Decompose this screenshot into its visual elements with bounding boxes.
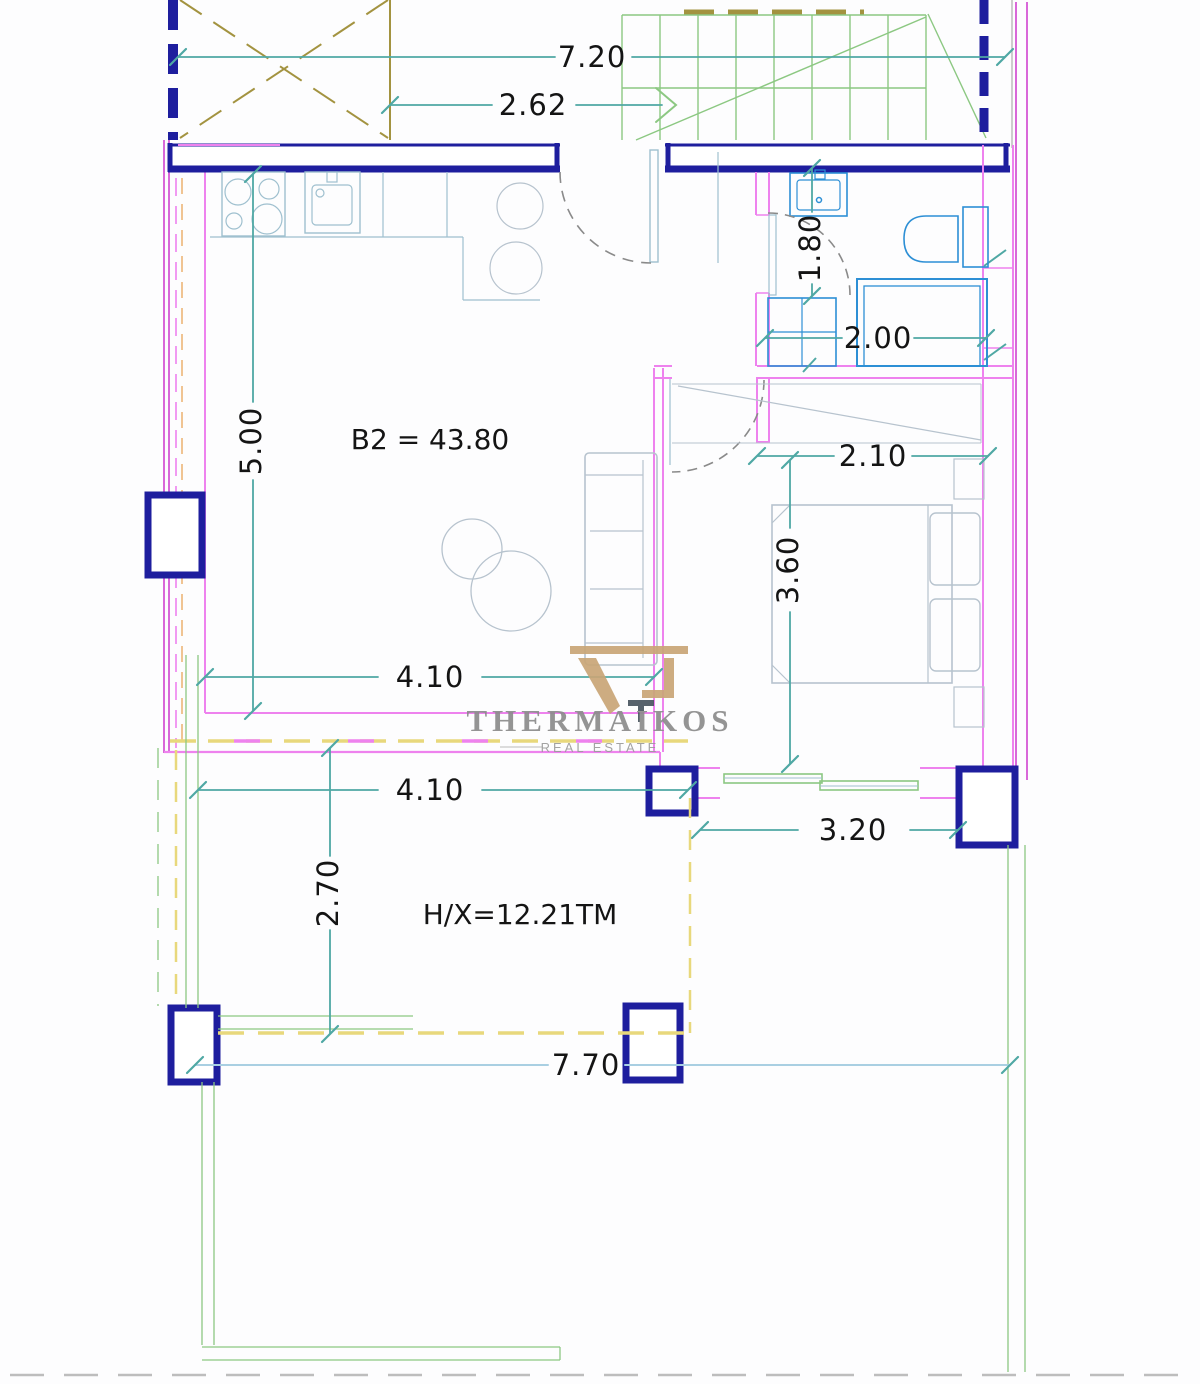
dim-living-width: 4.10 xyxy=(396,660,465,694)
washing-machine xyxy=(768,298,836,372)
floor-plan-drawing: 7.20 2.62 5.00 1.80 2.00 2.10 xyxy=(0,0,1200,1384)
property-line-left xyxy=(164,140,205,753)
dim-closet-width: 2.10 xyxy=(839,439,908,473)
dim-living-depth: 5.00 xyxy=(234,407,268,476)
dim-bedroom-depth: 3.60 xyxy=(771,536,805,605)
terrace-area-label: H/X=12.21TM xyxy=(423,898,618,931)
floor-plan: 7.20 2.62 5.00 1.80 2.00 2.10 xyxy=(0,0,1200,1384)
dim-shower-width: 2.00 xyxy=(844,321,913,355)
dim-terrace-total-width: 7.70 xyxy=(552,1048,621,1082)
dim-terrace-width: 4.10 xyxy=(396,773,465,807)
dim-overall-width: 7.20 xyxy=(558,40,627,74)
kitchen-sink xyxy=(305,172,360,233)
logo-tagline: REAL ESTATE xyxy=(541,740,660,755)
bedroom xyxy=(672,378,984,727)
property-line-right xyxy=(1016,2,1027,780)
bedroom-window xyxy=(724,774,918,790)
watermark-logo: THERMAIKOS REAL ESTATE xyxy=(466,646,733,755)
dim-terrace-depth: 2.70 xyxy=(311,859,345,928)
nightstand xyxy=(954,459,984,499)
structural-columns xyxy=(148,495,1015,1082)
kitchen-table xyxy=(490,183,543,294)
sofa xyxy=(585,453,657,665)
logo-name: THERMAIKOS xyxy=(466,703,733,738)
top-wall xyxy=(168,143,1010,172)
coffee-table xyxy=(442,519,551,631)
nightstand xyxy=(954,687,984,727)
stair-right-wall xyxy=(984,0,1012,148)
unit-area-label: B2 = 43.80 xyxy=(351,423,509,456)
pillow xyxy=(930,513,980,585)
bath-sink xyxy=(790,170,847,216)
entry-door xyxy=(560,150,658,263)
dim-bath-entry: 1.80 xyxy=(793,214,827,283)
dim-bedroom-window-width: 3.20 xyxy=(819,813,888,847)
elevator-shaft xyxy=(173,0,390,140)
pillow xyxy=(930,599,980,671)
closet xyxy=(672,384,981,443)
staircase xyxy=(622,12,986,140)
partition-bedroom-top xyxy=(654,366,1013,378)
kitchen xyxy=(210,172,543,300)
toilet xyxy=(904,207,988,267)
dim-stair-width: 2.62 xyxy=(499,88,568,122)
